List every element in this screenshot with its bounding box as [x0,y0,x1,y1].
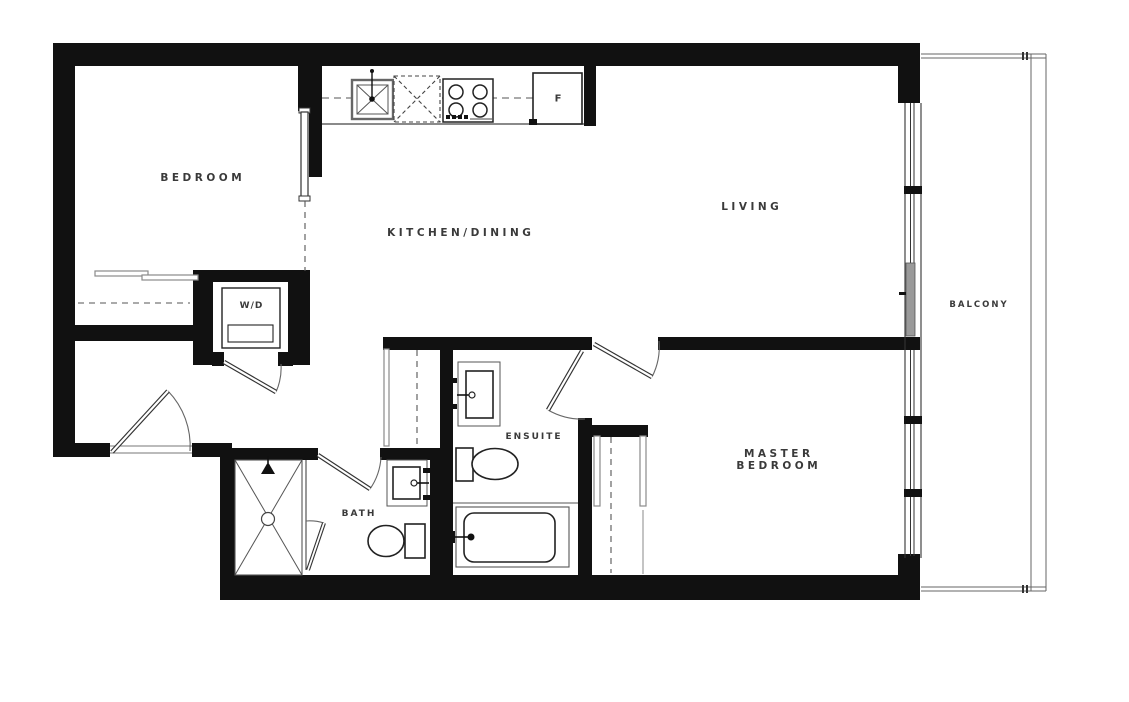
wd-door-post-left [212,352,224,366]
ensuite-door [548,351,585,419]
burner-icon [449,103,463,117]
wd-door-post-right [278,352,293,366]
window-wall [899,103,922,558]
wall-bottom [220,575,920,600]
wall-bottom-right-stub [898,554,920,600]
burner-icon [473,103,487,117]
room-label-kitchen-dining: KITCHEN/DINING [384,227,535,239]
wall-entry-left [53,443,110,457]
ensuite-toilet [456,448,518,481]
entry [110,446,192,453]
burner-icon [449,85,463,99]
wall-bedroom-closet-south [53,325,193,341]
bath-sink [387,460,430,506]
master-closet [594,436,646,574]
room-label-bath: BATH [340,509,377,519]
closet-bypass-panel [142,275,198,280]
floor-plan-drawing [0,0,1129,702]
bedroom-sliding-door [299,108,310,271]
laundry-unit [222,288,280,348]
floor-plan: BEDROOM KITCHEN/DINING LIVING MASTER BED… [0,0,1129,702]
room-label-living: LIVING [718,201,783,213]
bath-toilet [368,524,425,558]
room-label-master-line1: MASTER [733,448,821,460]
closet-door-panel [384,349,389,446]
wall-left [53,43,75,457]
bath-door [318,455,381,489]
tub-faucet-icon [449,531,455,543]
burner-icon [473,85,487,99]
wall-top [53,43,920,66]
stove [443,79,493,122]
balcony-outline [921,52,1046,593]
wall-mid [383,337,592,350]
room-label-bedroom: BEDROOM [157,172,245,184]
room-label-balcony: BALCONY [947,300,1008,310]
wall-bath-north-a [220,448,308,460]
wall-kitchen-west-b [309,108,322,177]
shower-door [306,521,324,570]
fridge-label: F [555,94,562,105]
door-handle-icon [899,292,906,295]
wall-hallcloset-east [440,337,453,448]
bedroom-closet [78,271,198,303]
balcony-sliding-door [899,263,915,336]
wall-wd-east [288,270,310,365]
entry-door [112,391,190,452]
wall-living-south [658,337,920,350]
room-label-master-bedroom: MASTER BEDROOM [733,448,821,472]
hall-closet [384,349,417,446]
closet-door-panel [640,436,646,506]
wall-bath-north-b [380,448,433,460]
closet-door-panel [594,436,600,506]
room-label-ensuite: ENSUITE [503,432,562,442]
wall-mastercloset-north [587,425,648,437]
room-label-master-line2: BEDROOM [733,460,821,472]
master-bedroom-door [594,341,659,377]
kitchen-fixtures [322,69,584,125]
room-label-laundry: W/D [239,301,264,311]
wall-wd-west [193,270,213,365]
closet-bypass-panel [95,271,148,276]
bath-door-post [308,448,318,460]
bath-fixtures [235,456,430,575]
shower-drain-icon [262,513,275,526]
wall-ensuite-east [578,418,592,578]
wall-top-right-stub [898,43,920,103]
wall-kitchen-west-a [298,43,322,111]
bathtub [449,507,569,567]
shower [235,456,306,575]
dishwasher [394,76,440,122]
kitchen-sink [352,69,393,119]
wall-kitchen-pilaster [584,64,596,126]
laundry-door [224,362,281,392]
wall-bath-east [430,448,453,600]
ensuite-sink [450,362,500,426]
